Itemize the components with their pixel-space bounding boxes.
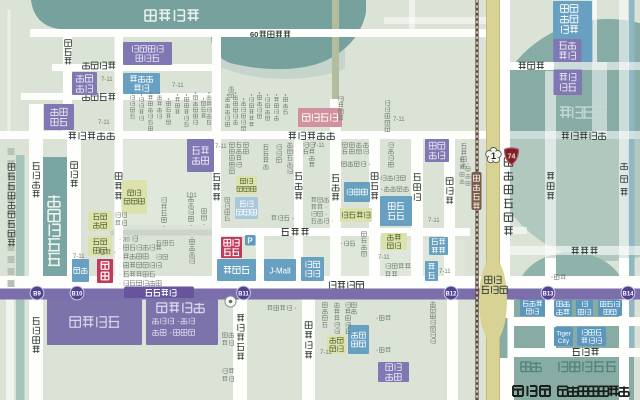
svg-text:74: 74 [508, 154, 516, 161]
svg-text:7-11: 7-11 [73, 254, 85, 260]
svg-text:101: 101 [186, 192, 197, 199]
svg-text:30: 30 [123, 238, 130, 244]
svg-text:B13: B13 [542, 291, 554, 297]
svg-text:·: · [119, 246, 121, 252]
svg-text:Tiger: Tiger [556, 331, 571, 338]
svg-text:7-11: 7-11 [320, 350, 332, 356]
svg-text:7-11: 7-11 [428, 218, 440, 224]
svg-text:·: · [119, 273, 121, 279]
svg-text:·: · [119, 282, 121, 288]
svg-text:P: P [247, 237, 253, 246]
svg-text:7-11: 7-11 [101, 77, 113, 83]
svg-text:B11: B11 [238, 291, 249, 297]
svg-text:60: 60 [250, 30, 258, 39]
svg-text:7-11: 7-11 [215, 144, 227, 150]
svg-text:City: City [558, 338, 570, 345]
svg-text:B9: B9 [33, 291, 41, 297]
svg-text:7-11: 7-11 [172, 83, 184, 89]
svg-text:B14: B14 [622, 291, 634, 297]
svg-text:·: · [119, 237, 121, 243]
svg-text:7-11: 7-11 [98, 120, 110, 126]
svg-text:7-11: 7-11 [378, 255, 390, 261]
svg-text:7-11: 7-11 [439, 269, 451, 275]
svg-text:·: · [119, 264, 121, 270]
svg-text:B10: B10 [71, 291, 83, 297]
svg-text:·: · [119, 255, 121, 261]
svg-text:B12: B12 [445, 291, 457, 297]
svg-text:7-11: 7-11 [313, 143, 325, 149]
svg-text:7-11: 7-11 [393, 117, 405, 123]
svg-text:1: 1 [491, 151, 496, 161]
svg-text:J-Mall: J-Mall [269, 267, 291, 276]
